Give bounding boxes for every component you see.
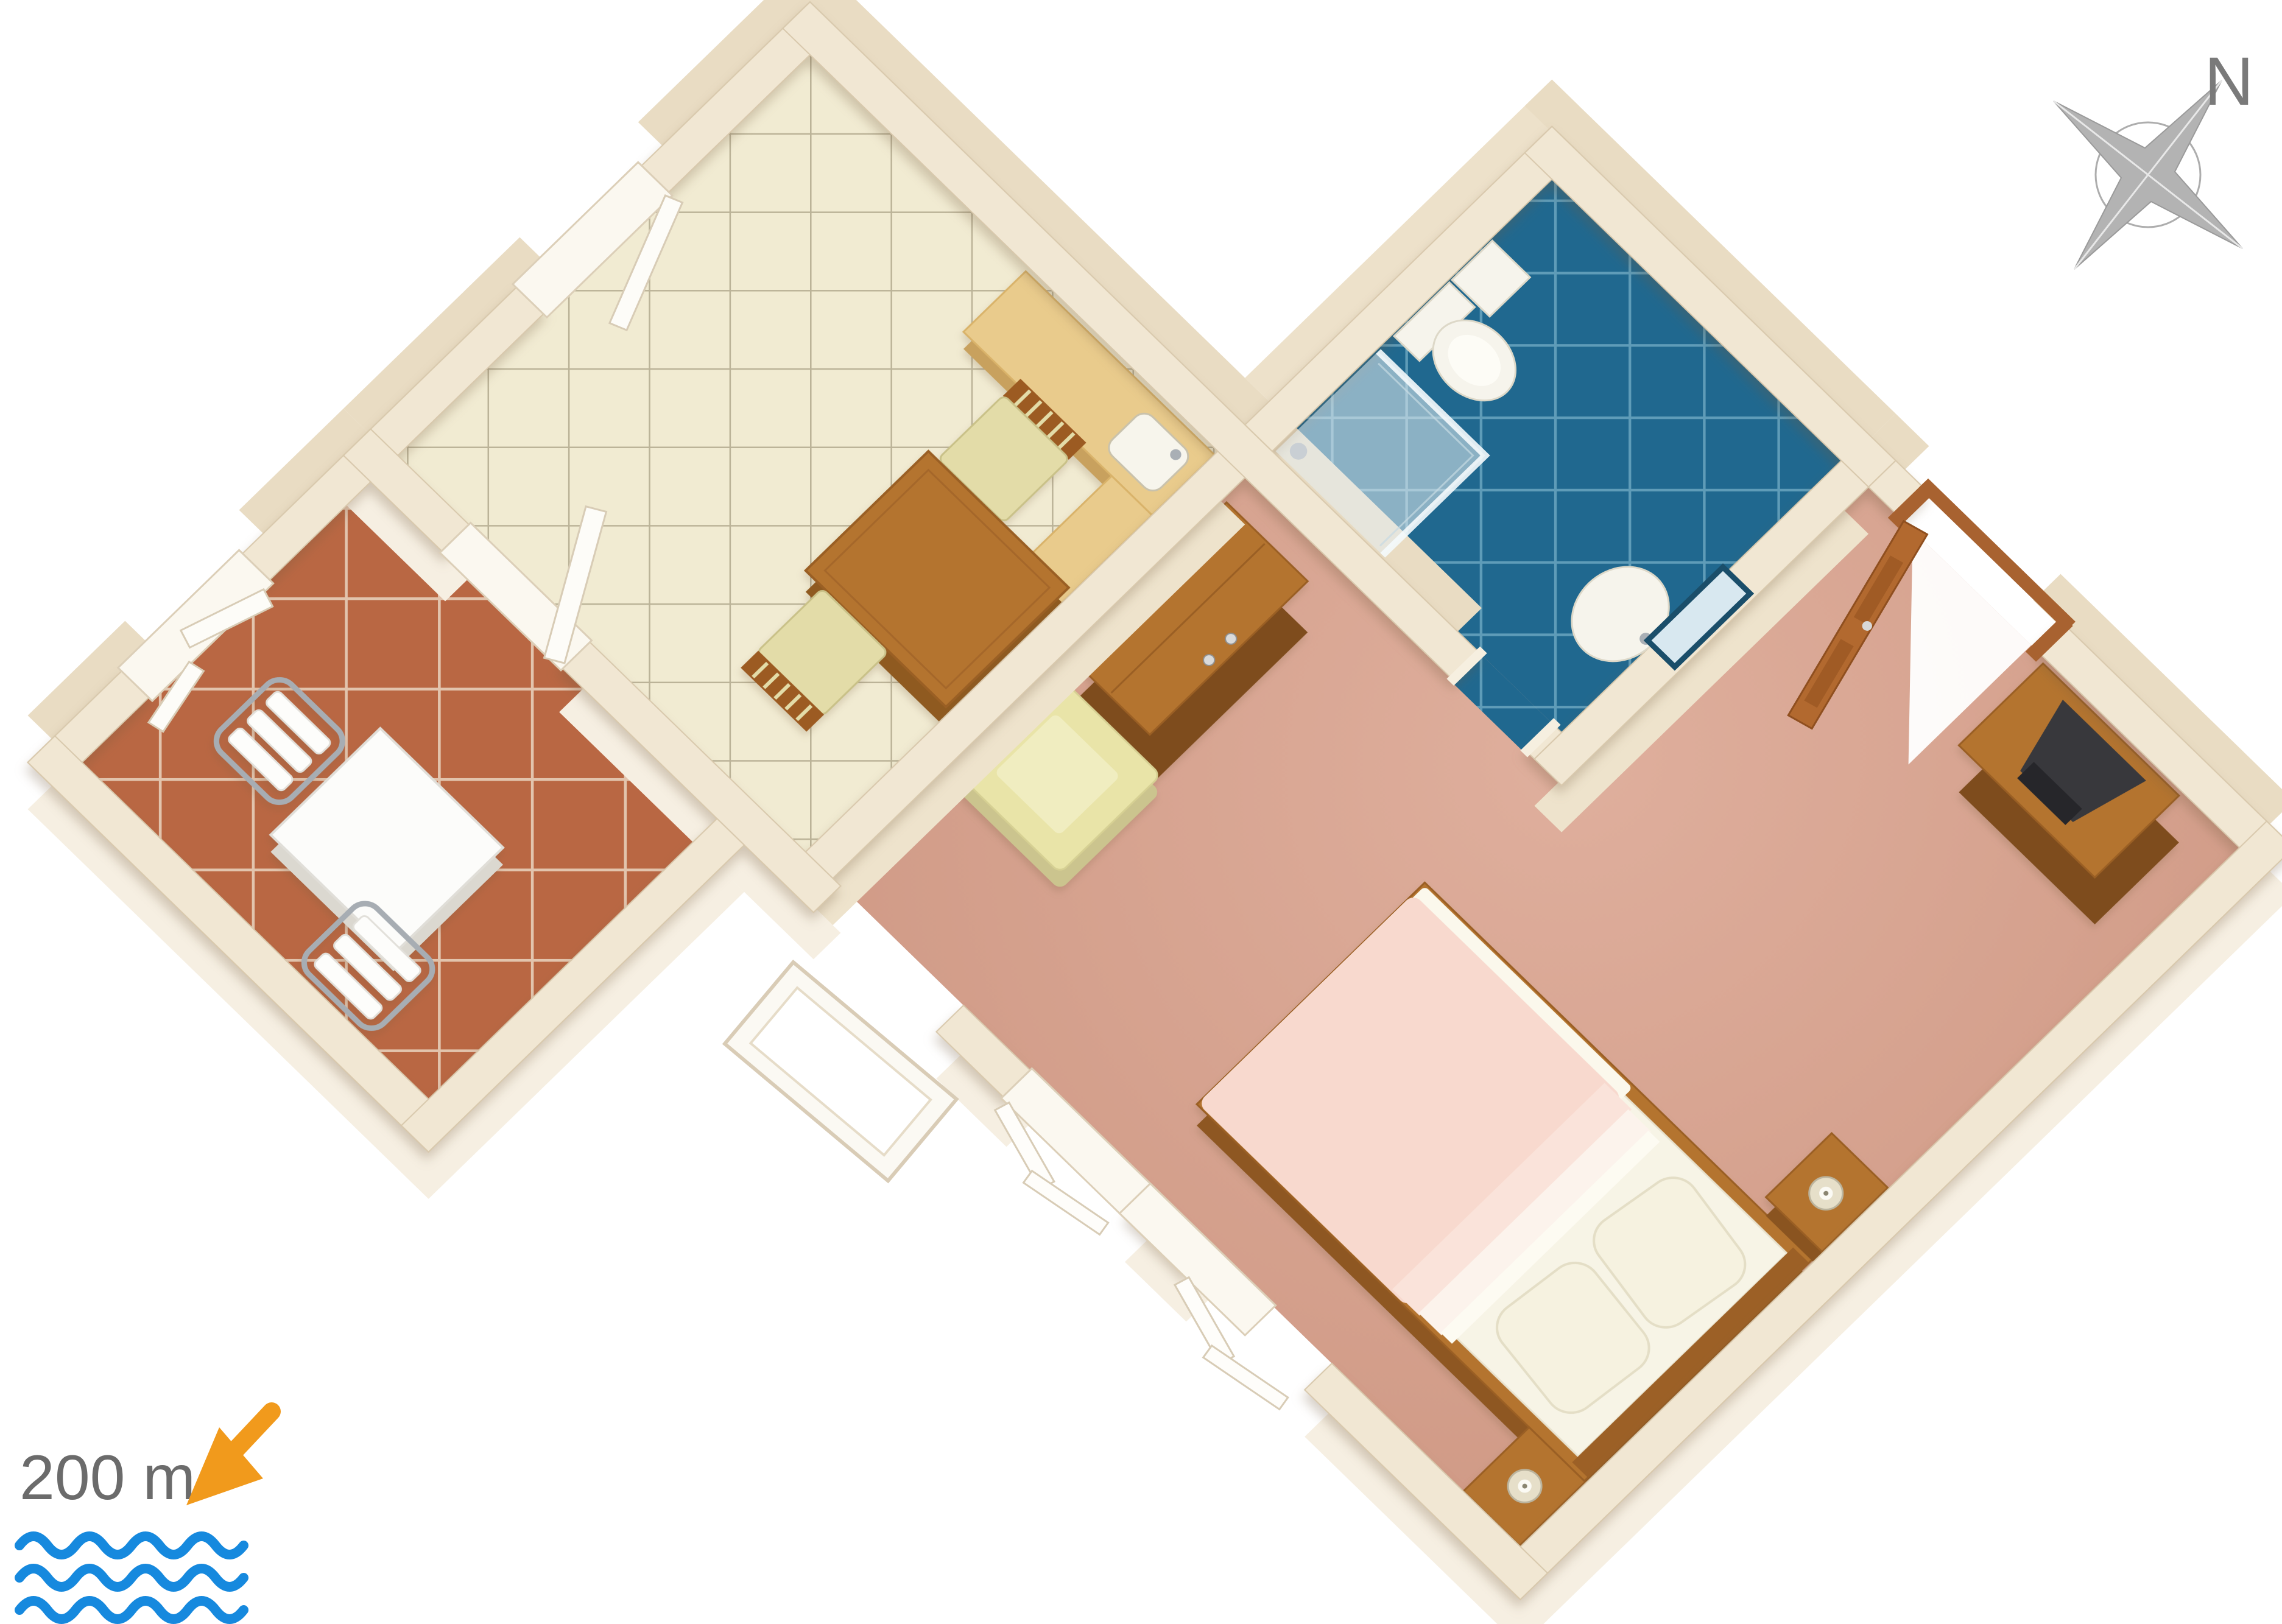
open-door-frame (725, 962, 957, 1181)
compass-north-label: N (2205, 43, 2254, 119)
wave-line (19, 1601, 244, 1619)
compass: N (2054, 43, 2253, 269)
apartment-floor-plan (0, 0, 2282, 1624)
sea-direction-arrow-icon (186, 1411, 272, 1505)
window-leaf (1203, 1346, 1288, 1410)
wave-line (19, 1536, 244, 1555)
wave-line (19, 1569, 244, 1587)
waves-icon (19, 1536, 244, 1619)
floor-plan-canvas: N 200 m (0, 0, 2282, 1624)
distance-label: 200 m (19, 1443, 195, 1513)
distance-marker: 200 m (19, 1411, 272, 1619)
